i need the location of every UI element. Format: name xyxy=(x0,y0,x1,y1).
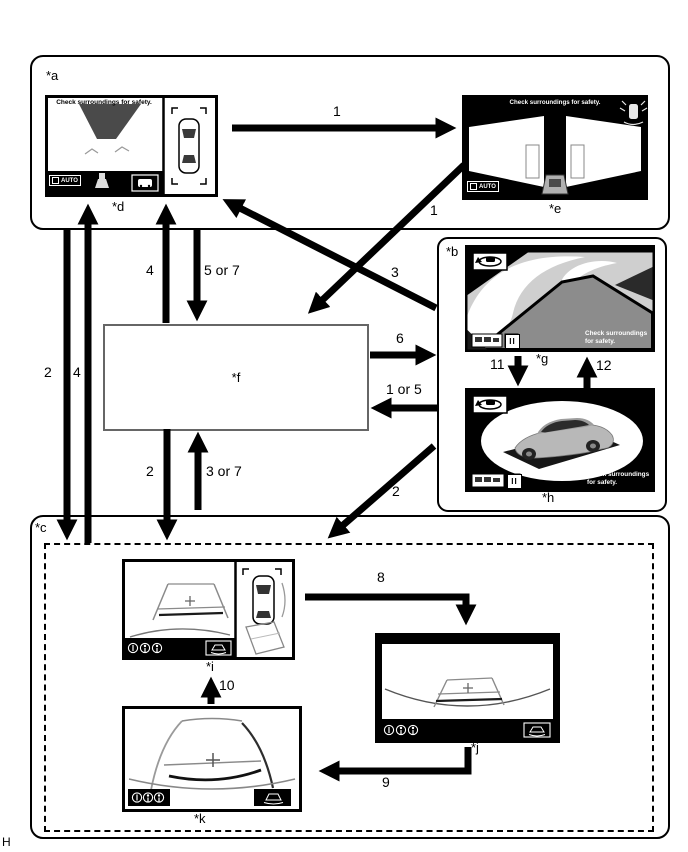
screen-k-label: *k xyxy=(194,811,206,826)
screen-e-label: *e xyxy=(549,201,561,216)
screen-panoramic-wide-front: Check surroundings for safety. AUTO xyxy=(45,95,218,197)
auto-badge: AUTO xyxy=(49,175,81,186)
screen-i-label: *i xyxy=(206,659,214,674)
group-a-label: *a xyxy=(46,68,58,83)
screen-h-label: *h xyxy=(542,490,554,505)
pause-button: II xyxy=(507,474,522,489)
transition-label-h-to-g: 12 xyxy=(596,357,612,373)
transition-label-c-to-f: 3 or 7 xyxy=(206,463,242,479)
screen-j-graphic xyxy=(375,633,560,743)
diagram-page: *a Check surroundings for safety. AUTO *… xyxy=(0,0,688,852)
guide-mode-icon xyxy=(254,789,291,806)
camera-mode-icon xyxy=(472,474,504,487)
transition-label-a-to-c: 2 xyxy=(44,364,52,380)
transition-label-i-to-j: 8 xyxy=(377,569,385,585)
transition-label-g-to-h: 11 xyxy=(490,356,505,372)
screen-wide-rear-view xyxy=(375,633,560,743)
screen-k-graphic xyxy=(122,706,302,812)
transition-label-b-to-a: 3 xyxy=(391,264,399,280)
rotate-view-icon xyxy=(473,396,507,413)
auto-icon xyxy=(52,177,59,184)
auto-badge: AUTO xyxy=(467,181,499,192)
rotate-view-icon xyxy=(473,253,507,270)
transition-label-a-to-e: 1 xyxy=(333,103,341,119)
screen-g-label: *g xyxy=(536,351,548,366)
car-top-view xyxy=(179,119,199,173)
group-b-label: *b xyxy=(446,244,458,259)
group-c-label: *c xyxy=(35,520,47,535)
screen-d-caption: Check surroundings for safety. xyxy=(48,99,160,106)
transition-label-f-to-c: 2 xyxy=(146,463,154,479)
page-corner-mark: H xyxy=(2,835,11,849)
screen-g-caption: Check surroundings for safety. xyxy=(585,330,649,347)
transition-label-j-to-k: 9 xyxy=(382,774,390,790)
screen-rear-view xyxy=(122,706,302,812)
transition-label-b-to-f: 1 or 5 xyxy=(386,381,422,397)
camera-mode-icon xyxy=(472,334,502,347)
transition-label-k-to-i: 10 xyxy=(219,677,235,693)
screen-moving-view: II Check surroundings for safety. xyxy=(465,388,655,492)
screen-j-label: *j xyxy=(471,740,479,755)
screen-see-through-view: II Check surroundings for safety. xyxy=(465,245,655,352)
auto-icon xyxy=(470,183,477,190)
group-f-label: *f xyxy=(232,370,241,385)
screen-e-caption: Check surroundings for safety. xyxy=(490,99,620,106)
screen-d-label: *d xyxy=(112,199,124,214)
transition-label-b-to-c: 2 xyxy=(392,483,400,499)
screen-h-caption: Check surroundings for safety. xyxy=(587,471,651,488)
transition-label-c-to-a: 4 xyxy=(73,364,81,380)
info-icons xyxy=(128,789,170,806)
transition-label-a-to-f: 5 or 7 xyxy=(204,262,240,278)
screen-i-graphic xyxy=(122,559,295,660)
screen-side-clearance: Check surroundings for safety. AUTO xyxy=(462,95,648,200)
transition-label-f-to-a: 4 xyxy=(146,262,154,278)
transition-label-f-to-b: 6 xyxy=(396,330,404,346)
screen-rear-and-top-view xyxy=(122,559,295,660)
pause-button: II xyxy=(505,334,520,349)
group-box-f: *f xyxy=(103,324,369,431)
transition-label-e-to-f: 1 xyxy=(430,202,438,218)
